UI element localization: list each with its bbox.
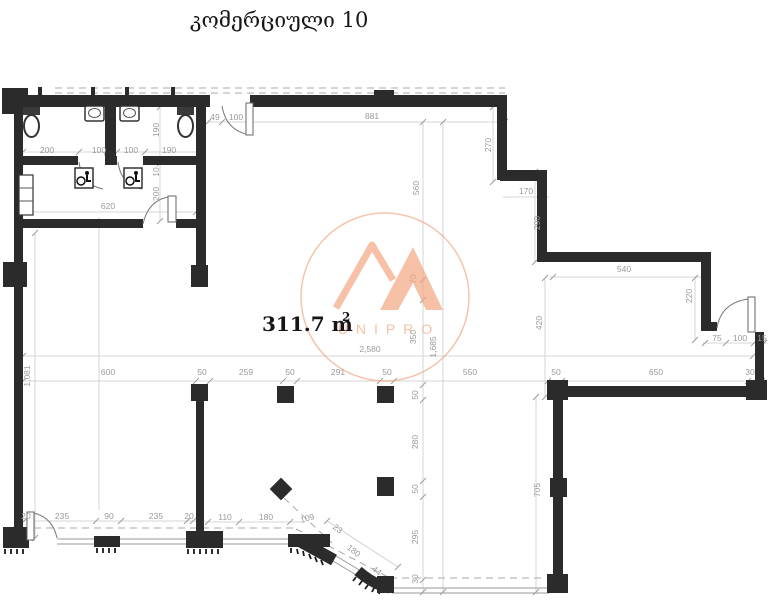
- dimension-label: 50: [410, 484, 420, 494]
- dimension-label: 235: [149, 511, 163, 521]
- dimension-label: 540: [617, 264, 631, 274]
- dimension-label: 50: [551, 367, 561, 377]
- dimension-label: 100: [92, 145, 106, 155]
- dimension-label: 220: [684, 289, 694, 303]
- dimension-label: 1,685: [428, 336, 438, 358]
- watermark-logo-icon: [336, 245, 393, 308]
- walls: [2, 88, 767, 594]
- page-title: კომერციული 10: [190, 8, 368, 32]
- dimension-label: 50: [410, 390, 420, 400]
- area-label: 311.7 m: [262, 312, 353, 336]
- wheelchair-icon: [124, 168, 142, 188]
- floor-plan-canvas: 2001001001901901020062049100881270560170…: [0, 0, 770, 601]
- dimension-label: 180: [345, 542, 363, 559]
- dimension-label: 20: [184, 511, 194, 521]
- dimension-label: 1,081: [22, 365, 32, 387]
- door-leaf: [246, 103, 253, 135]
- door-arc: [34, 513, 57, 538]
- dimension-label: 190: [151, 123, 161, 137]
- dimension-label: 30: [410, 574, 420, 584]
- dimension-label: 49: [210, 112, 220, 122]
- area-label-superscript: 2: [342, 310, 350, 324]
- dimension-label: 295: [410, 530, 420, 544]
- dimension-label: 291: [331, 367, 345, 377]
- dimension-label: 420: [534, 316, 544, 330]
- dimension-label: 259: [239, 367, 253, 377]
- toilet-icon: [177, 107, 194, 137]
- dimension-label: 200: [151, 187, 161, 201]
- dimension-label: 100: [229, 112, 243, 122]
- dimension-label: 550: [463, 367, 477, 377]
- toilet-icon: [23, 107, 40, 137]
- dimension-label: 180: [259, 512, 273, 522]
- dimension-label: 10: [151, 167, 161, 177]
- door-leaf: [168, 196, 176, 222]
- watermark-brand: UNIPRO: [338, 321, 440, 337]
- dimension-label: 881: [365, 111, 379, 121]
- dimension-label: 30: [745, 367, 755, 377]
- sink-icon: [120, 106, 139, 121]
- dimension-label: 15: [757, 333, 767, 343]
- door-arc: [717, 299, 748, 328]
- dimension-label: 2,580: [359, 344, 381, 354]
- dimension-label: 705: [532, 483, 542, 497]
- dimension-label: 235: [55, 511, 69, 521]
- door-leaf: [748, 297, 755, 332]
- dimension-label: 23: [331, 522, 345, 536]
- dimension-label: 600: [101, 367, 115, 377]
- sink-icon: [85, 106, 104, 121]
- dimension-label: 100: [124, 145, 138, 155]
- dimension-label: 650: [649, 367, 663, 377]
- dimension-label: 280: [410, 435, 420, 449]
- dimension-label: 20: [21, 511, 31, 521]
- dimension-label: 190: [162, 145, 176, 155]
- cabinet: [19, 175, 33, 215]
- dimension-label: 620: [101, 201, 115, 211]
- dimension-label: 270: [483, 138, 493, 152]
- dimension-label: 50: [285, 367, 295, 377]
- wheelchair-icon: [75, 168, 93, 188]
- dimension-label: 200: [40, 145, 54, 155]
- dimension-label: 75: [712, 333, 722, 343]
- floor-plan-svg: 2001001001901901020062049100881270560170…: [0, 0, 770, 601]
- dimension-label: 100: [733, 333, 747, 343]
- dimension-label: 560: [411, 181, 421, 195]
- dimension-label: 50: [197, 367, 207, 377]
- dimension-label: 110: [218, 512, 232, 522]
- dimension-label: 50: [382, 367, 392, 377]
- dimension-label: 290: [532, 216, 542, 230]
- dimension-label: 170: [519, 186, 533, 196]
- dimension-label: 90: [104, 511, 114, 521]
- dimension-label: 109: [299, 511, 316, 524]
